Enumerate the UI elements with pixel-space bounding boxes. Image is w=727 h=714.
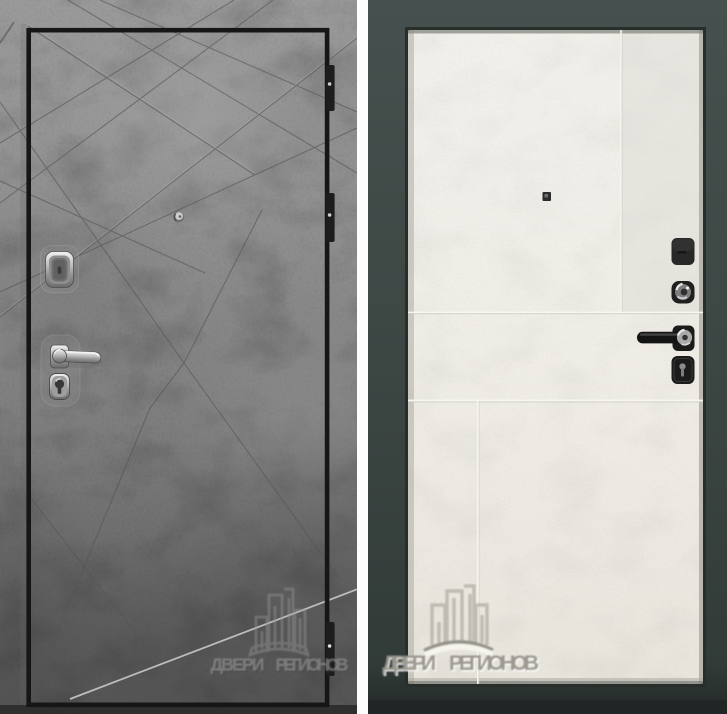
svg-text:РЕГИОНОВ: РЕГИОНОВ xyxy=(276,655,349,675)
svg-text:РЕГИОНОВ: РЕГИОНОВ xyxy=(449,652,539,675)
svg-text:ДВЕРИ: ДВЕРИ xyxy=(211,655,265,675)
svg-text:ДВЕРИ: ДВЕРИ xyxy=(382,652,436,675)
